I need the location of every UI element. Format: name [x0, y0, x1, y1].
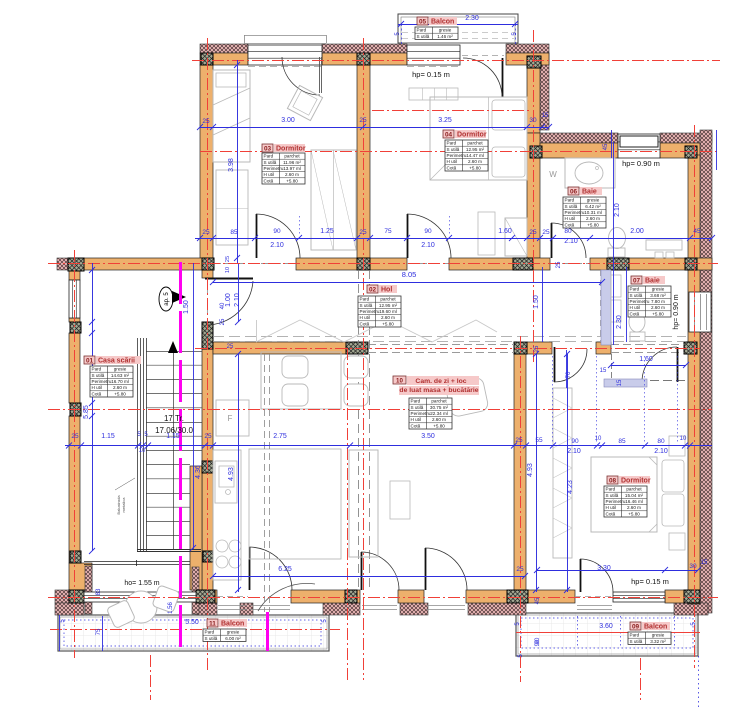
svg-text:17 Tr.: 17 Tr. — [164, 414, 184, 423]
svg-text:F: F — [228, 414, 233, 423]
svg-text:2.30: 2.30 — [465, 15, 479, 22]
svg-text:10: 10 — [680, 436, 687, 442]
svg-text:02: 02 — [369, 286, 377, 293]
svg-text:Perimetru: Perimetru — [606, 499, 626, 504]
svg-text:75: 75 — [384, 228, 392, 235]
svg-text:metalica: metalica — [121, 497, 126, 513]
svg-text:25: 25 — [516, 566, 524, 573]
svg-text:8.05: 8.05 — [402, 270, 417, 279]
svg-text:S utilă: S utilă — [92, 373, 105, 378]
svg-text:83: 83 — [96, 588, 102, 595]
svg-text:15: 15 — [701, 560, 708, 566]
svg-text:de luat masa + bucătărie: de luat masa + bucătărie — [399, 387, 478, 394]
svg-text:10: 10 — [595, 436, 602, 442]
svg-text:+5.80: +5.80 — [587, 222, 599, 227]
svg-text:Baie: Baie — [645, 277, 660, 284]
svg-text:2.60 m: 2.60 m — [468, 159, 482, 164]
svg-text:25: 25 — [359, 117, 367, 124]
svg-text:10: 10 — [396, 378, 403, 385]
svg-text:Perimetru: Perimetru — [447, 153, 467, 158]
svg-text:30: 30 — [689, 563, 697, 570]
svg-text:Perimetru: Perimetru — [360, 309, 380, 314]
svg-text:40: 40 — [220, 302, 226, 309]
svg-text:85: 85 — [618, 438, 626, 445]
svg-text:gresie: gresie — [652, 287, 665, 292]
svg-text:2.10: 2.10 — [654, 448, 668, 455]
svg-text:Pard: Pard — [92, 367, 102, 372]
svg-text:Cotă: Cotă — [360, 321, 370, 326]
svg-text:H util: H util — [411, 417, 421, 422]
svg-text:15: 15 — [542, 113, 549, 119]
svg-text:6.25: 6.25 — [278, 566, 292, 573]
svg-text:Dormitor: Dormitor — [276, 145, 306, 152]
svg-text:S utilă: S utilă — [360, 303, 373, 308]
svg-text:17.06/30.0: 17.06/30.0 — [155, 426, 193, 435]
svg-text:S utilă: S utilă — [630, 293, 643, 298]
svg-text:Balcon: Balcon — [644, 623, 667, 630]
svg-text:16.46 ml: 16.46 ml — [625, 499, 643, 504]
svg-text:25: 25 — [534, 345, 540, 352]
svg-text:+5.80: +5.80 — [114, 391, 126, 396]
svg-text:S utilă: S utilă — [630, 639, 643, 644]
svg-text:4.93: 4.93 — [527, 463, 534, 477]
svg-text:7.80 m: 7.80 m — [651, 299, 665, 304]
svg-text:Perimetru: Perimetru — [92, 379, 112, 384]
svg-text:13.97 ml: 13.97 ml — [283, 166, 301, 171]
svg-text:1.50: 1.50 — [183, 300, 190, 314]
svg-text:2.60 m: 2.60 m — [381, 315, 395, 320]
svg-text:25: 25 — [359, 229, 367, 236]
svg-text:80: 80 — [564, 228, 572, 235]
svg-text:+5.80: +5.80 — [469, 165, 481, 170]
svg-text:2.30: 2.30 — [616, 315, 623, 329]
svg-text:4.93: 4.93 — [228, 467, 235, 481]
svg-text:Cotă: Cotă — [447, 165, 457, 170]
svg-text:+5.80: +5.80 — [382, 321, 394, 326]
svg-text:25: 25 — [227, 344, 234, 350]
svg-text:Pard: Pard — [360, 297, 370, 302]
svg-text:25: 25 — [220, 318, 226, 325]
svg-text:90: 90 — [273, 228, 281, 235]
svg-text:+5.80: +5.80 — [433, 423, 445, 428]
svg-text:75: 75 — [96, 628, 102, 635]
svg-text:4.36: 4.36 — [195, 465, 202, 479]
svg-text:08: 08 — [609, 477, 617, 484]
svg-text:6.42 m²: 6.42 m² — [585, 204, 601, 209]
svg-text:Balcon: Balcon — [431, 18, 454, 25]
svg-text:Cam. de zi + loc: Cam. de zi + loc — [415, 378, 466, 385]
svg-text:S utilă: S utilă — [411, 405, 424, 410]
svg-text:1.00: 1.00 — [225, 293, 232, 307]
svg-text:5.50: 5.50 — [185, 619, 199, 626]
svg-text:4.23: 4.23 — [567, 480, 574, 494]
svg-text:2.10: 2.10 — [421, 242, 435, 249]
svg-text:Pard: Pard — [630, 633, 640, 638]
svg-text:11.96 m²: 11.96 m² — [283, 160, 301, 165]
svg-text:3.98: 3.98 — [228, 158, 235, 172]
svg-text:Pard: Pard — [606, 487, 616, 492]
svg-text:S utilă: S utilă — [606, 493, 619, 498]
svg-text:H util: H util — [565, 216, 575, 221]
svg-text:Baie: Baie — [582, 188, 597, 195]
svg-text:80: 80 — [657, 438, 665, 445]
svg-text:25: 25 — [529, 229, 537, 236]
svg-text:12.95 m²: 12.95 m² — [466, 147, 485, 152]
svg-text:25: 25 — [71, 433, 79, 440]
svg-text:30.75 m²: 30.75 m² — [430, 405, 449, 410]
svg-text:25: 25 — [556, 261, 562, 268]
svg-text:H util: H util — [92, 385, 102, 390]
svg-text:3.68 m²: 3.68 m² — [650, 293, 666, 298]
svg-text:gresie: gresie — [587, 198, 600, 203]
svg-text:parchet: parchet — [467, 141, 483, 146]
svg-text:Perimetru: Perimetru — [411, 411, 431, 416]
svg-text:15: 15 — [600, 368, 607, 374]
svg-text:01: 01 — [86, 357, 94, 364]
svg-text:05: 05 — [419, 18, 427, 25]
svg-text:S utilă: S utilă — [264, 160, 277, 165]
svg-text:25: 25 — [225, 256, 231, 262]
svg-text:90: 90 — [424, 228, 432, 235]
svg-text:Dormitor: Dormitor — [621, 477, 651, 484]
svg-text:S utilă: S utilă — [447, 147, 460, 152]
svg-text:30: 30 — [529, 117, 537, 124]
svg-text:gresie: gresie — [227, 630, 240, 635]
svg-text:5.85: 5.85 — [83, 405, 90, 419]
svg-text:+5.80: +5.80 — [652, 311, 664, 316]
svg-text:04: 04 — [445, 131, 453, 138]
svg-text:2.60 m: 2.60 m — [285, 172, 299, 177]
svg-text:Dormitor: Dormitor — [457, 131, 487, 138]
svg-text:Cotă: Cotă — [630, 311, 640, 316]
svg-text:1.15: 1.15 — [101, 433, 115, 440]
svg-text:45: 45 — [693, 228, 701, 235]
svg-text:14.47 ml: 14.47 ml — [466, 153, 484, 158]
svg-text:2.10: 2.10 — [270, 242, 284, 249]
svg-text:3.32 m²: 3.32 m² — [650, 639, 666, 644]
svg-text:gresie: gresie — [439, 28, 452, 33]
svg-text:19.60 ml: 19.60 ml — [379, 309, 397, 314]
svg-text:2.60 m: 2.60 m — [113, 385, 127, 390]
svg-text:2.10: 2.10 — [564, 238, 578, 245]
svg-text:hp= 0.15 m: hp= 0.15 m — [631, 577, 669, 586]
svg-text:6.00 m²: 6.00 m² — [225, 636, 241, 641]
svg-text:1.60: 1.60 — [639, 356, 653, 363]
svg-text:25: 25 — [202, 118, 210, 125]
svg-text:parchet: parchet — [380, 297, 396, 302]
svg-text:gresie: gresie — [114, 367, 127, 372]
svg-text:2.10: 2.10 — [614, 203, 621, 217]
svg-text:Pard: Pard — [447, 141, 457, 146]
svg-text:1.60: 1.60 — [498, 228, 512, 235]
svg-text:25: 25 — [202, 229, 210, 236]
svg-text:1.56: 1.56 — [168, 602, 174, 614]
svg-text:3.60: 3.60 — [599, 623, 613, 630]
svg-text:14.63 m²: 14.63 m² — [111, 373, 130, 378]
svg-text:ap. 5: ap. 5 — [164, 292, 170, 306]
svg-text:hp= 0.90 m: hp= 0.90 m — [673, 294, 680, 329]
svg-text:3.00: 3.00 — [281, 117, 295, 124]
svg-text:Pard: Pard — [417, 28, 427, 33]
svg-text:parchet: parchet — [431, 399, 447, 404]
svg-text:Pard: Pard — [411, 399, 421, 404]
svg-text:2.60 m: 2.60 m — [432, 417, 446, 422]
svg-text:90: 90 — [535, 637, 541, 644]
svg-text:10: 10 — [225, 267, 231, 273]
svg-text:2.10: 2.10 — [234, 293, 241, 307]
svg-text:ho= 1.55 m: ho= 1.55 m — [124, 580, 159, 587]
svg-text:S utilă: S utilă — [417, 34, 430, 39]
svg-text:Pard: Pard — [205, 630, 215, 635]
svg-text:gresie: gresie — [652, 633, 665, 638]
svg-text:25: 25 — [204, 433, 212, 440]
svg-text:2.60 m: 2.60 m — [586, 216, 600, 221]
svg-text:Cotă: Cotă — [606, 511, 616, 516]
svg-text:+5.80: +5.80 — [286, 178, 298, 183]
svg-text:1.25: 1.25 — [320, 228, 334, 235]
svg-text:H util: H util — [447, 159, 457, 164]
svg-text:12.95 m²: 12.95 m² — [379, 303, 398, 308]
svg-text:Hol: Hol — [381, 286, 392, 293]
svg-text:2.10: 2.10 — [567, 448, 581, 455]
svg-text:07: 07 — [633, 277, 641, 284]
svg-text:Cotă: Cotă — [264, 178, 274, 183]
svg-text:hp= 0.15 m: hp= 0.15 m — [412, 70, 450, 79]
svg-text:2.00: 2.00 — [630, 228, 644, 235]
svg-text:10: 10 — [139, 448, 146, 454]
svg-text:parchet: parchet — [626, 487, 642, 492]
svg-text:H util: H util — [264, 172, 274, 177]
svg-text:H util: H util — [606, 505, 616, 510]
svg-text:25: 25 — [542, 229, 550, 236]
svg-text:Cotă: Cotă — [565, 222, 575, 227]
svg-text:W: W — [549, 170, 557, 179]
svg-text:1.46 m²: 1.46 m² — [437, 34, 453, 39]
svg-text:Pard: Pard — [264, 154, 274, 159]
svg-text:25: 25 — [515, 437, 523, 444]
svg-text:2.60 m: 2.60 m — [651, 305, 665, 310]
svg-text:H util: H util — [360, 315, 370, 320]
svg-text:hp= 0.90 m: hp= 0.90 m — [622, 159, 660, 168]
svg-text:+5.80: +5.80 — [628, 511, 640, 516]
svg-text:90: 90 — [571, 438, 579, 445]
svg-text:15.04 m²: 15.04 m² — [625, 493, 644, 498]
svg-text:1.50: 1.50 — [533, 295, 540, 309]
svg-text:S utilă: S utilă — [205, 636, 218, 641]
svg-text:45: 45 — [603, 143, 609, 150]
svg-text:2.75: 2.75 — [273, 433, 287, 440]
svg-text:85: 85 — [230, 229, 238, 236]
svg-text:Casa scării: Casa scării — [98, 357, 135, 364]
svg-text:Perimetru: Perimetru — [264, 166, 284, 171]
svg-text:16.70 ml: 16.70 ml — [111, 379, 129, 384]
svg-text:parchet: parchet — [284, 154, 300, 159]
svg-text:3.50: 3.50 — [421, 433, 435, 440]
svg-text:Pard: Pard — [630, 287, 640, 292]
svg-text:S utilă: S utilă — [565, 204, 578, 209]
svg-text:Cotă: Cotă — [411, 423, 421, 428]
svg-text:Perimetru: Perimetru — [565, 210, 585, 215]
svg-text:H util: H util — [630, 305, 640, 310]
svg-text:22.34 ml: 22.34 ml — [430, 411, 448, 416]
svg-text:2.60 m: 2.60 m — [627, 505, 641, 510]
svg-text:11: 11 — [209, 620, 216, 627]
svg-text:10.31 ml: 10.31 ml — [584, 210, 602, 215]
svg-text:Perimetru: Perimetru — [630, 299, 650, 304]
svg-text:Cotă: Cotă — [92, 391, 102, 396]
svg-text:45: 45 — [535, 597, 541, 604]
svg-text:Balcon: Balcon — [221, 620, 244, 627]
svg-text:15: 15 — [617, 379, 623, 386]
svg-text:09: 09 — [632, 623, 640, 630]
svg-text:03: 03 — [264, 145, 272, 152]
svg-text:06: 06 — [570, 188, 578, 195]
svg-text:3.25: 3.25 — [438, 117, 452, 124]
svg-text:Pard: Pard — [565, 198, 575, 203]
